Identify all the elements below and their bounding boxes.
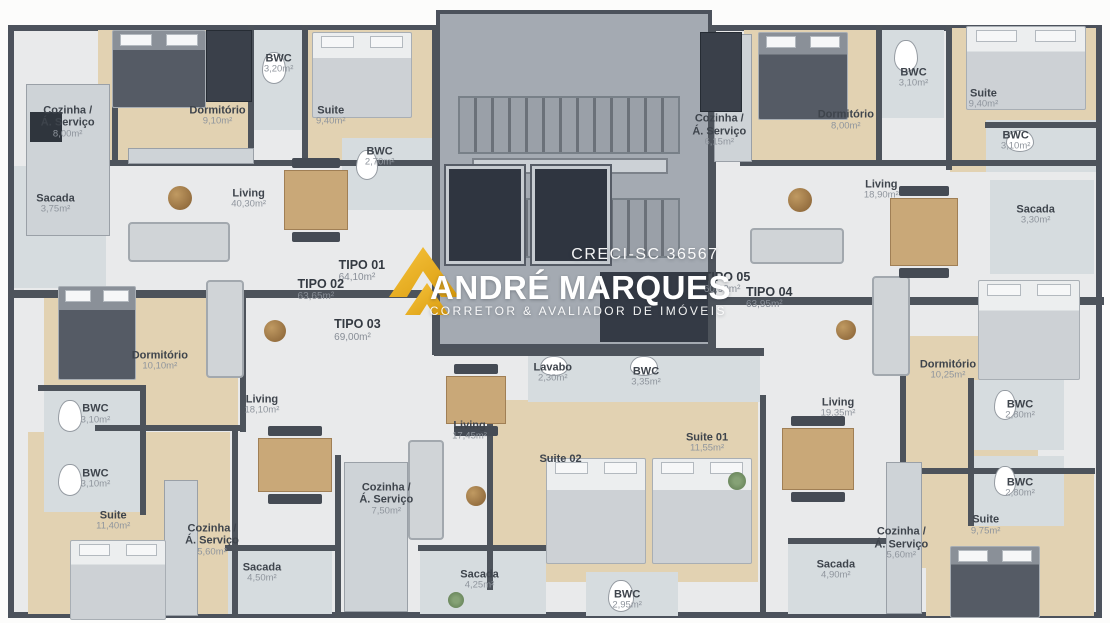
- side-table-icon: [788, 188, 812, 212]
- kitchen-counter: [164, 480, 198, 616]
- bed-icon: [950, 546, 1040, 618]
- toilet-icon: [262, 52, 286, 84]
- zone-bwc-tl2: [342, 138, 432, 210]
- bed-icon: [112, 30, 206, 108]
- bed-icon: [758, 32, 848, 120]
- bed-icon: [58, 286, 136, 380]
- stairs-upper-flight: [458, 96, 680, 154]
- creci-number: CRECI-SC 36567: [571, 246, 718, 264]
- dining-table-icon: [258, 438, 332, 492]
- wall: [225, 545, 335, 551]
- sofa-icon: [206, 280, 244, 378]
- zone-bwc-rm1: [970, 380, 1064, 450]
- wall: [418, 545, 548, 551]
- toilet-icon: [630, 356, 658, 376]
- toilet-icon: [356, 150, 378, 180]
- wall: [232, 430, 238, 618]
- bed-icon: [546, 458, 646, 564]
- wall: [302, 25, 308, 165]
- dining-table-icon: [890, 198, 958, 266]
- toilet-icon: [540, 356, 568, 376]
- kitchen-counter: [26, 84, 110, 236]
- wardrobe-icon: [206, 30, 252, 102]
- wall: [38, 385, 143, 391]
- toilet-icon: [994, 390, 1016, 420]
- zone-sacada-center: [420, 548, 546, 614]
- toilet-icon: [894, 40, 918, 72]
- bed-icon: [978, 280, 1080, 380]
- wall: [95, 425, 245, 431]
- toilet-icon: [58, 464, 82, 496]
- wall: [140, 385, 146, 515]
- bed-icon: [966, 26, 1086, 110]
- kitchen-counter: [344, 462, 408, 612]
- zone-bwc-rm2: [970, 456, 1064, 526]
- wall: [434, 348, 764, 356]
- wall: [968, 378, 974, 526]
- zone-sacada-tr: [990, 180, 1094, 274]
- wall: [985, 122, 1100, 128]
- toilet-icon: [58, 400, 82, 432]
- wall: [740, 160, 1100, 166]
- sofa-icon: [872, 276, 910, 376]
- wall: [487, 395, 493, 590]
- sofa-icon: [750, 228, 844, 264]
- wall: [760, 395, 766, 618]
- brand-first-name: ANDRÉ: [430, 269, 550, 307]
- dining-table-icon: [284, 170, 348, 230]
- zone-bwc-lb: [44, 388, 142, 512]
- plant-icon: [448, 592, 464, 608]
- toilet-icon: [608, 580, 634, 612]
- toilet-icon: [994, 466, 1016, 496]
- bed-icon: [70, 540, 166, 620]
- brand-tagline: CORRETOR & AVALIADOR DE IMÓVEIS: [430, 304, 727, 318]
- wall: [335, 455, 341, 618]
- toilet-icon: [1006, 130, 1034, 152]
- dining-table-icon: [446, 376, 506, 424]
- stove-icon: [30, 112, 62, 142]
- brand-last-name: MARQUES: [559, 269, 731, 307]
- plant-icon: [728, 472, 746, 490]
- kitchen-counter: [886, 462, 922, 614]
- wall: [876, 25, 882, 165]
- brand-name: ANDRÉ MARQUES: [430, 269, 731, 307]
- zone-sacada-lb: [228, 548, 332, 614]
- side-table-icon: [836, 320, 856, 340]
- side-table-icon: [264, 320, 286, 342]
- wall: [946, 25, 952, 170]
- sofa-icon: [408, 440, 444, 540]
- side-table-icon: [168, 186, 192, 210]
- wardrobe-icon: [700, 32, 742, 112]
- sideboard: [128, 148, 254, 164]
- dining-table-icon: [782, 428, 854, 490]
- bed-icon: [312, 32, 412, 118]
- zone-sacada-rb: [788, 544, 902, 614]
- side-table-icon: [466, 486, 486, 506]
- sofa-icon: [128, 222, 230, 262]
- floorplan: Cozinha / Á. Serviço 8,00m² Dormitório 9…: [0, 0, 1110, 623]
